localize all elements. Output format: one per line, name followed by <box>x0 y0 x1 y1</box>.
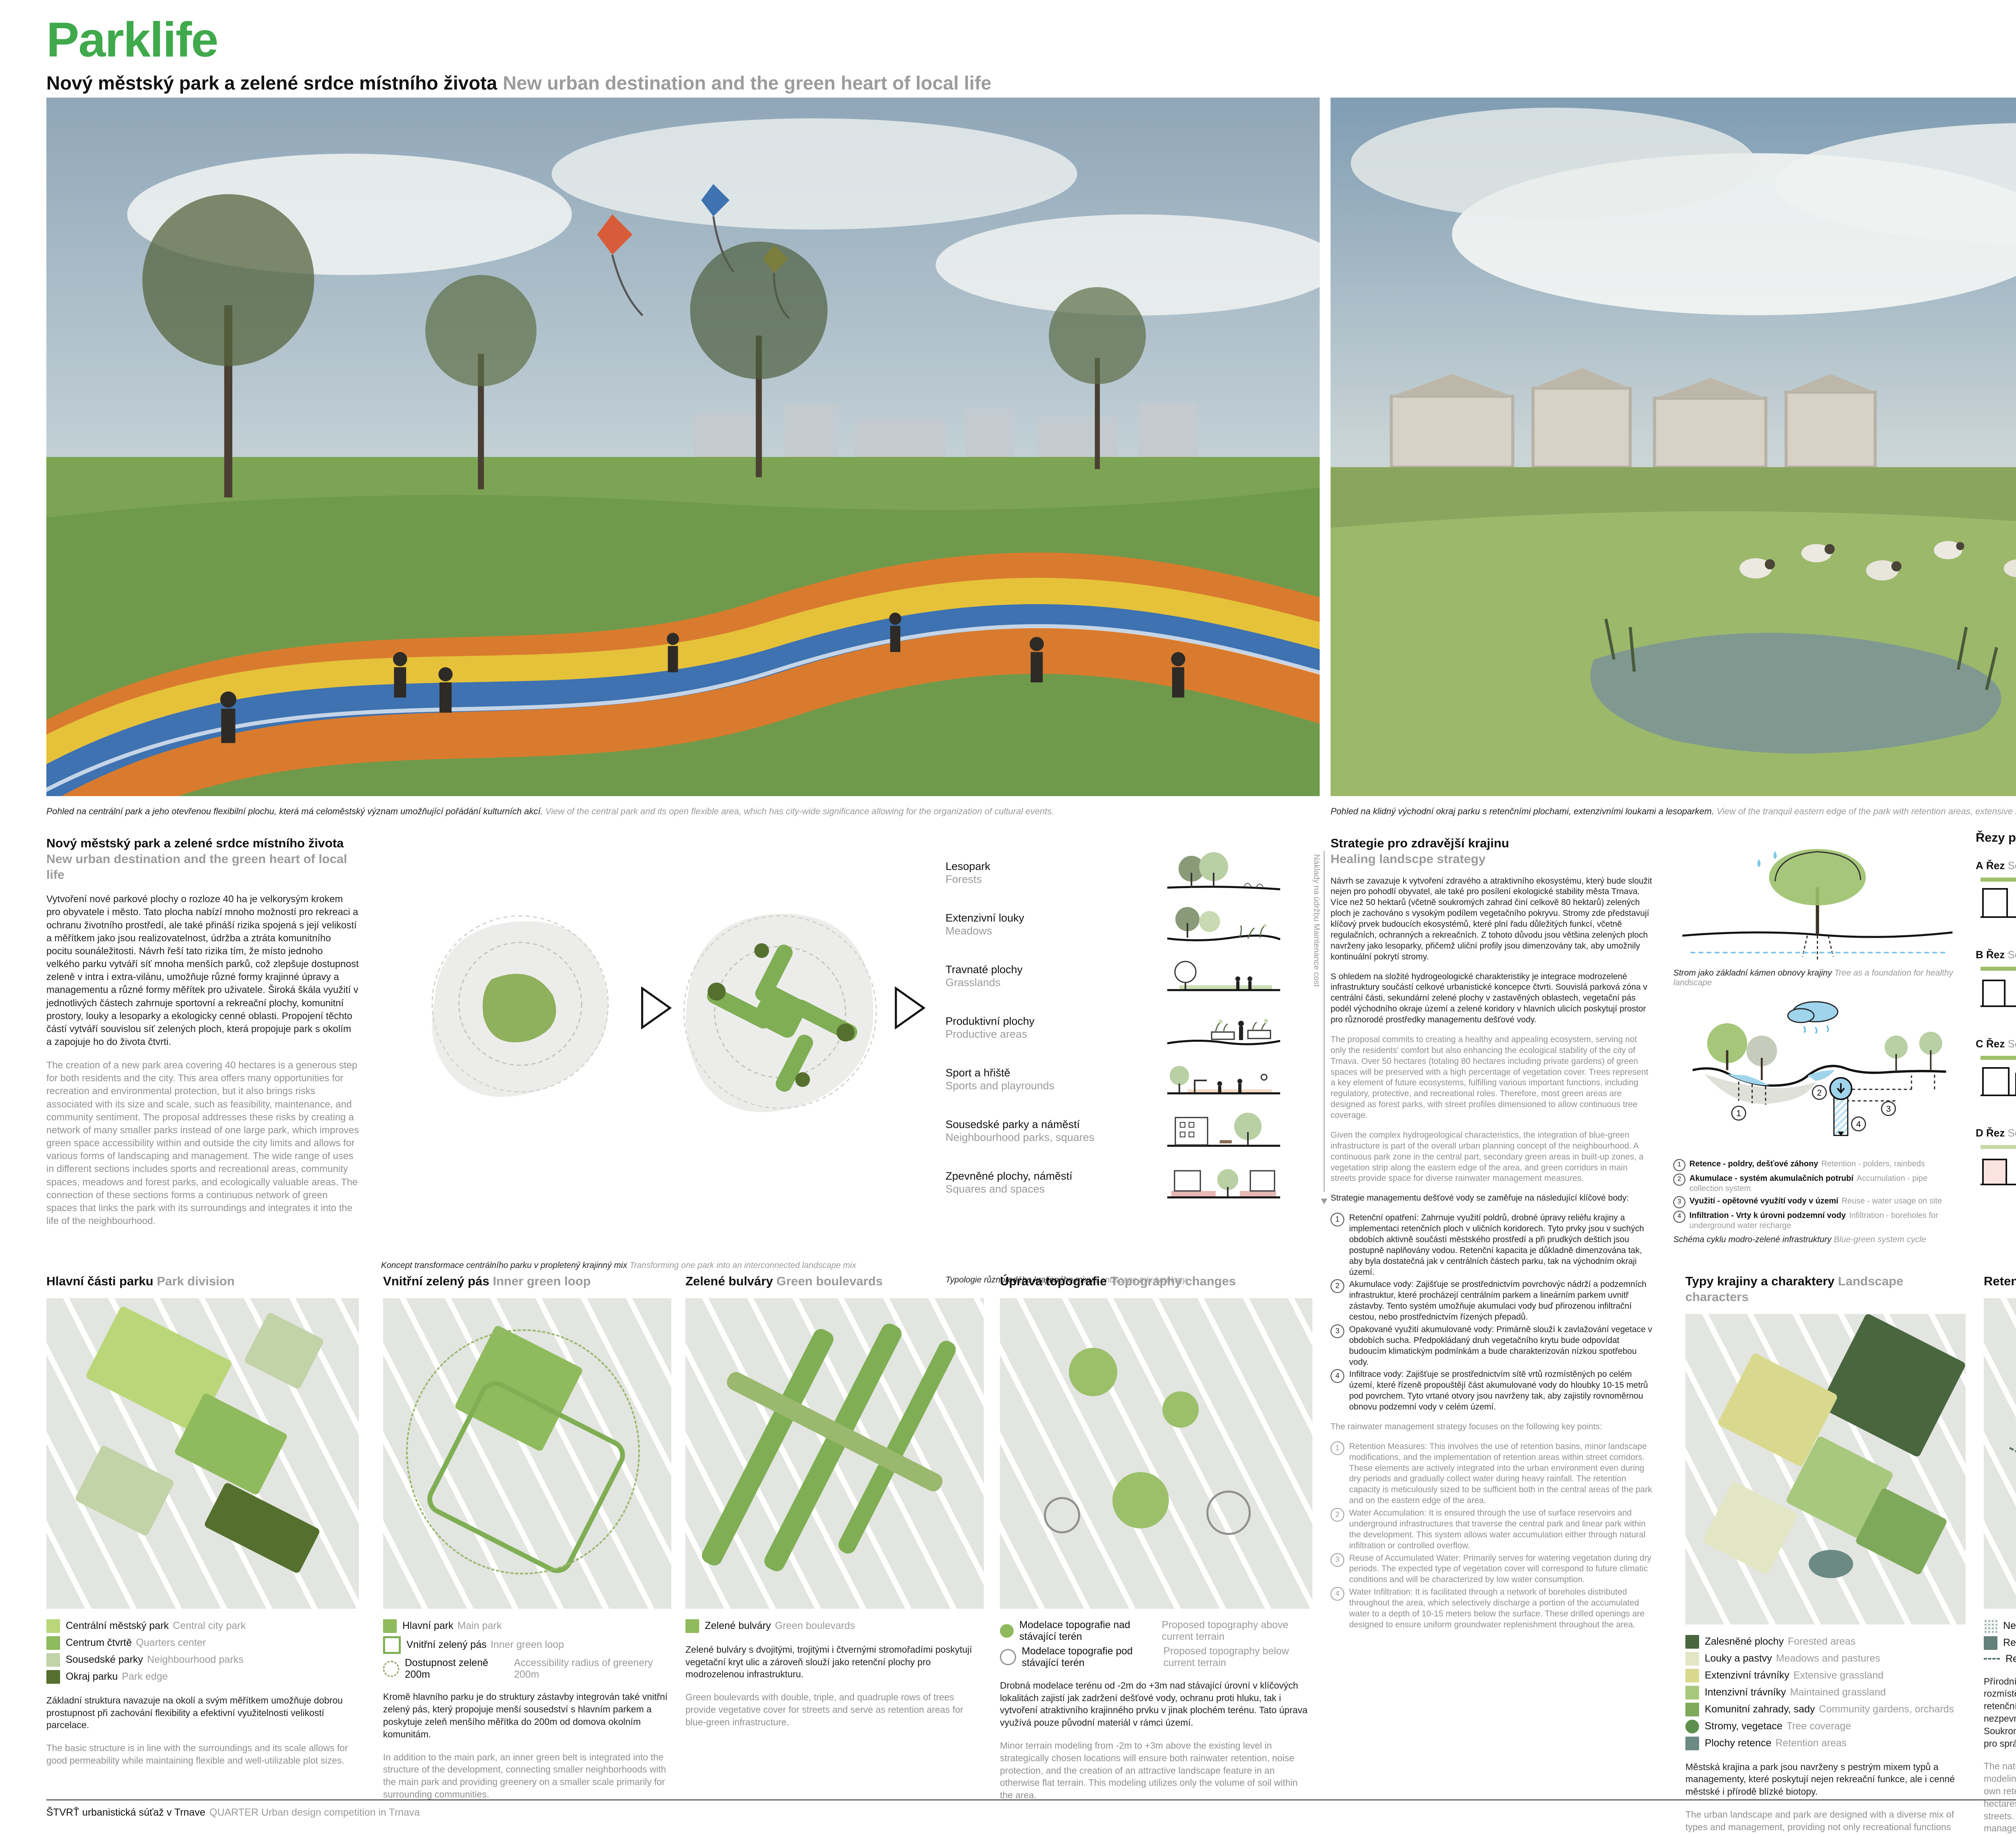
col2-heading: Vnitřní zelený pás Inner green loop <box>383 1274 671 1289</box>
axis-label: Náklady na údržbu Maintenance cost <box>1312 854 1321 987</box>
legend-item: Intenzivní trávníkyMaintained grassland <box>1685 1686 1966 1699</box>
col3-body-en: Green boulevards with double, triple, an… <box>685 1691 984 1728</box>
section-drawing: 1 2 4 <box>1976 1142 2016 1202</box>
typology-item: Zpevněné plochy, náměstíSquares and spac… <box>946 1157 1329 1208</box>
typology-label-en: Squares and spaces <box>946 1182 1119 1195</box>
section-drawing: 1 3 4 <box>1976 963 2016 1024</box>
col1-legend: Centrální městský parkCentral city park … <box>46 1619 359 1684</box>
legend-swatch <box>1000 1624 1014 1638</box>
col6-body-cz: Přírodní systém retenčních oblastí tvoře… <box>1984 1675 2016 1750</box>
typology-item: Extenzivní loukyMeadows <box>946 899 1329 950</box>
legend-item: Hlavní parkMain park <box>383 1619 671 1633</box>
cycle-caption-cz: Schéma cyklu modro-zelené infrastruktury <box>1673 1235 1831 1244</box>
typology-label-cz: Travnaté plochy <box>946 963 1119 976</box>
footer-cz: ŠTVRŤ urbanistická súťaž v Trnave <box>46 1807 205 1818</box>
footer: ŠTVRŤ urbanistická súťaž v TrnaveQUARTER… <box>46 1807 420 1818</box>
hero-right-caption-en: View of the tranquil eastern edge of the… <box>1716 806 2016 816</box>
col1-heading: Hlavní části parku Park division <box>46 1274 359 1289</box>
concept-caption-en: Transforming one park into an interconne… <box>629 1261 856 1270</box>
cycle-caption: Schéma cyklu modro-zelené infrastruktury… <box>1673 1235 1962 1245</box>
legend-swatch <box>1685 1737 1699 1750</box>
list-item: 2Akumulace vody: Zajišťuje se prostředni… <box>1331 1279 1653 1323</box>
typology-legend: LesoparkForests Extenzivní loukyMeadows … <box>946 847 1329 1270</box>
legend-item: Modelace topografie pod stávající terénP… <box>1000 1645 1312 1669</box>
column-green-boulevards: Zelené bulváry Green boulevards Zelené b… <box>685 1274 984 1798</box>
strategy-list-cz: 1Retenční opatření: Zahrnuje využití pol… <box>1331 1213 1653 1413</box>
map-green-boulevards <box>685 1298 984 1609</box>
col2-legend: Hlavní parkMain park Vnitřní zelený pásI… <box>383 1619 671 1681</box>
tree-caption: Strom jako základní kámen obnovy krajiny… <box>1673 968 1962 988</box>
section-row-d: D Řez Section 1 2 4 <box>1976 1127 2016 1202</box>
diagram-column: Strom jako základní kámen obnovy krajiny… <box>1673 843 1962 1270</box>
forest-sketch-icon <box>1119 851 1329 895</box>
cycle-diagram: 1 2 3 4 <box>1673 993 1962 1155</box>
legend-item: Stromy, vegetaceTree coverage <box>1685 1720 1966 1733</box>
col4-legend: Modelace topografie nad stávající terénP… <box>1000 1619 1312 1669</box>
meadow-sketch-icon <box>1119 902 1329 947</box>
concept-caption-cz: Koncept transformace centrálního parku v… <box>381 1261 627 1270</box>
map-inner-green-loop <box>383 1298 671 1609</box>
col1-body-cz: Základní struktura navazuje na okolí a s… <box>46 1694 359 1731</box>
typology-item: Sousedské parky a náměstíNeighbourhood p… <box>946 1105 1329 1157</box>
section-drawing: 1 2 3 <box>1976 1053 2016 1113</box>
list-item: 2Water Accumulation: It is ensured throu… <box>1331 1508 1653 1551</box>
concept-diagram-drawing <box>377 847 925 1210</box>
concept-caption: Koncept transformace centrálního parku v… <box>381 1261 856 1270</box>
strategy-column: Strategie pro zdravější krajinu Healing … <box>1331 836 1653 1804</box>
subtitle-en: New urban destination and the green hear… <box>503 72 991 94</box>
legend-swatch <box>1685 1703 1699 1716</box>
cycle-caption-en: Blue-green system cycle <box>1834 1235 1926 1244</box>
hero-left-image <box>46 98 1320 796</box>
typology-label-cz: Extenzivní louky <box>946 911 1119 924</box>
intro-body-cz: Vytvoření nové parkové plochy o rozloze … <box>46 893 359 1049</box>
strategy-p1-en: The proposal commits to creating a healt… <box>1331 1034 1653 1121</box>
svg-text:1: 1 <box>1736 1109 1741 1118</box>
typology-item: Produktivní plochyProductive areas <box>946 1002 1329 1053</box>
legend-swatch <box>383 1636 401 1654</box>
list-item: 4Water Infiltration: It is facilitated t… <box>1331 1587 1653 1631</box>
col5-body-en: The urban landscape and park are designe… <box>1685 1808 1966 1835</box>
sections-heading: Řezy parkem Park sections 1:000 <box>1976 830 2016 846</box>
hero-right-illustration <box>1331 98 2016 796</box>
column-topography: Úprava topografie Topography changes Mod… <box>1000 1274 1312 1798</box>
intro-heading-cz: Nový městský park a zelené srdce místníh… <box>46 836 359 851</box>
typology-label-cz: Sport a hřiště <box>946 1066 1119 1079</box>
page-title: Parklife <box>46 11 218 68</box>
typology-label-en: Sports and playrounds <box>946 1079 1119 1092</box>
legend-item: Dostupnost zeleně 200mAccessibility radi… <box>383 1657 671 1681</box>
legend-swatch <box>1685 1652 1699 1666</box>
legend-item: Modelace topografie nad stávající terénP… <box>1000 1619 1312 1643</box>
axis-arrowhead-icon <box>1321 1199 1327 1204</box>
strategy-p2-cz: S ohledem na složité hydrogeologické cha… <box>1331 972 1653 1026</box>
hero-left-caption-en: View of the central park and its open fl… <box>546 806 1054 816</box>
map-topography <box>1000 1298 1312 1609</box>
productive-sketch-icon <box>1119 1005 1329 1050</box>
strategy-p1-cz: Návrh se zavazuje k vytvoření zdravého a… <box>1331 876 1653 963</box>
cycle-legend-item: 3Využití - opětovné využítí vody v území… <box>1673 1196 1962 1208</box>
footer-divider <box>46 1800 2016 1800</box>
legend-item: Zelené bulváryGreen boulevards <box>685 1619 984 1633</box>
column-landscape-characters: Typy krajiny a charaktery Landscape char… <box>1685 1274 1966 1798</box>
col5-heading: Typy krajiny a charaktery Landscape char… <box>1685 1274 1966 1305</box>
col3-legend: Zelené bulváryGreen boulevards <box>685 1619 984 1633</box>
map-retention-areas <box>1984 1298 2016 1609</box>
legend-item: Plochy retenceRetention areas <box>1685 1737 1966 1750</box>
list-item: 1Retenční opatření: Zahrnuje využití pol… <box>1331 1213 1653 1278</box>
col5-legend: Zalesněné plochyForested areas Louky a p… <box>1685 1635 1966 1750</box>
hero-right-caption-cz: Pohled na klidný východní okraj parku s … <box>1331 806 1714 816</box>
typology-label-en: Neighbourhood parks, squares <box>946 1131 1119 1144</box>
typology-label-en: Meadows <box>946 924 1119 937</box>
col6-legend: Nezpevněné plochyPermeable areas Retenčn… <box>1984 1619 2016 1665</box>
legend-item: Sousedské parkyNeighbourhood parks <box>46 1653 359 1667</box>
typology-label-cz: Produktivní plochy <box>946 1015 1119 1028</box>
legend-swatch <box>1984 1658 2000 1660</box>
map-park-division <box>46 1298 359 1609</box>
cycle-legend-item: 1Retence - poldry, dešťové záhonyRetenti… <box>1673 1159 1962 1171</box>
list-item: 3Reuse of Accumulated Water: Primarily s… <box>1331 1553 1653 1586</box>
col6-heading: Retenční plochy Retention areas <box>1984 1274 2016 1289</box>
legend-swatch <box>1000 1649 1016 1665</box>
typology-label-cz: Lesopark <box>946 860 1119 873</box>
sport-sketch-icon <box>1119 1057 1329 1101</box>
legend-item: Zalesněné plochyForested areas <box>1685 1635 1966 1649</box>
typology-item: LesoparkForests <box>946 847 1329 899</box>
col4-heading: Úprava topografie Topography changes <box>1000 1274 1312 1289</box>
legend-item: Centrální městský parkCentral city park <box>46 1619 359 1633</box>
hero-left-caption: Pohled na centrální park a jeho otevřeno… <box>46 806 1320 817</box>
hero-left-illustration <box>46 98 1320 796</box>
legend-swatch <box>46 1636 60 1650</box>
legend-swatch <box>1685 1686 1699 1699</box>
concept-diagram: Koncept transformace centrálního parku v… <box>377 847 925 1270</box>
svg-text:2: 2 <box>1817 1088 1822 1097</box>
section-row-c: C Řez Section 1 2 3 <box>1976 1038 2016 1113</box>
legend-swatch <box>1984 1619 1997 1633</box>
column-park-division: Hlavní části parku Park division Centrál… <box>46 1274 359 1798</box>
cycle-legend-item: 2Akumulace - systém akumulačních potrubí… <box>1673 1174 1962 1194</box>
legend-swatch <box>383 1619 397 1633</box>
intro-body-en: The creation of a new park area covering… <box>46 1059 359 1228</box>
legend-item: Centrum čtvrtěQuarters center <box>46 1636 359 1650</box>
maintenance-axis: Náklady na údržbu Maintenance cost <box>1316 851 1333 1206</box>
svg-text:3: 3 <box>1886 1104 1891 1114</box>
section-drawing: 1 2 3 <box>1976 874 2016 935</box>
hero-right-image <box>1331 98 2016 796</box>
col3-body-cz: Zelené bulváry s dvojitými, trojitými i … <box>685 1643 984 1681</box>
typology-label-en: Productive areas <box>946 1028 1119 1041</box>
column-retention-areas: Retenční plochy Retention areas Nezpevně… <box>1984 1274 2016 1798</box>
typology-label-cz: Zpevněné plochy, náměstí <box>946 1170 1119 1182</box>
col6-body-en: The natural retention system consisting … <box>1984 1760 2016 1835</box>
col2-body-en: In addition to the main park, an inner g… <box>383 1751 671 1801</box>
col3-heading: Zelené bulváry Green boulevards <box>685 1274 984 1289</box>
legend-swatch <box>685 1619 699 1633</box>
park-sections: Řezy parkem Park sections 1:000 Umístění… <box>1976 830 2016 1202</box>
col4-body-en: Minor terrain modeling from -2m to +3m a… <box>1000 1739 1312 1802</box>
typology-item: Travnaté plochyGrasslands <box>946 950 1329 1002</box>
list-item: 3Opakované využití akumulované vody: Pri… <box>1331 1324 1653 1368</box>
intro-heading-en: New urban destination and the green hear… <box>46 851 359 883</box>
cloud-icon <box>1788 1002 1838 1033</box>
col4-body-cz: Drobná modelace terénu od -2m do +3m nad… <box>1000 1679 1312 1729</box>
axis-line <box>1324 851 1325 1192</box>
sections-heading-cz: Řezy parkem <box>1976 830 2016 845</box>
col2-body-cz: Kromě hlavního parku je do struktury zás… <box>383 1691 671 1740</box>
intro-heading: Nový městský park a zelené srdce místníh… <box>46 836 359 882</box>
typology-label-cz: Sousedské parky a náměstí <box>946 1118 1119 1131</box>
typology-item: Sport a hřištěSports and playrounds <box>946 1053 1329 1105</box>
square-sketch-icon <box>1119 1160 1329 1205</box>
strategy-list-intro-en: The rainwater management strategy focuse… <box>1331 1422 1653 1433</box>
strategy-heading-en: Healing landscpe strategy <box>1331 851 1653 867</box>
list-item: 4Infiltrace vody: Zajišťuje se prostředn… <box>1331 1369 1653 1413</box>
page-subtitle: Nový městský park a zelené srdce místníh… <box>46 72 991 94</box>
list-item: 1Retention Measures: This involves the u… <box>1331 1441 1653 1506</box>
legend-swatch <box>1685 1720 1699 1733</box>
col1-body-en: The basic structure is in line with the … <box>46 1742 359 1767</box>
tree-diagram <box>1673 843 1962 964</box>
strategy-list-en: 1Retention Measures: This involves the u… <box>1331 1441 1653 1631</box>
grassland-sketch-icon <box>1119 954 1329 998</box>
legend-item: Vnitřní zelený pásInner green loop <box>383 1636 671 1654</box>
cycle-legend-item: 4Infiltration - Vrty k úrovni podzemní v… <box>1673 1211 1962 1231</box>
legend-item: Nezpevněné plochyPermeable areas <box>1984 1619 2016 1633</box>
subtitle-cz: Nový městský park a zelené srdce místníh… <box>46 72 497 94</box>
legend-item: Extenzivní trávníkyExtensive grassland <box>1685 1669 1966 1683</box>
cycle-legend: 1Retence - poldry, dešťové záhonyRetenti… <box>1673 1159 1962 1231</box>
col5-body-cz: Městská krajina a park jsou navrženy s p… <box>1685 1761 1966 1798</box>
legend-swatch <box>46 1619 60 1633</box>
footer-en: QUARTER Urban design competition in Trna… <box>209 1807 420 1818</box>
legend-item: Louky a pastvyMeadows and pastures <box>1685 1652 1966 1666</box>
hero-right-caption: Pohled na klidný východní okraj parku s … <box>1331 806 2016 817</box>
strategy-heading: Strategie pro zdravější krajinu Healing … <box>1331 836 1653 867</box>
intro-column: Nový městský park a zelené srdce místníh… <box>46 836 359 1228</box>
legend-item: Retence v uličním profiluStreet retentio… <box>1984 1653 2016 1665</box>
map-landscape-characters <box>1685 1314 1966 1624</box>
svg-text:4: 4 <box>1856 1120 1861 1129</box>
strategy-list-intro-cz: Strategie managementu dešťové vody se za… <box>1331 1193 1653 1204</box>
section-row-a: A Řez Section 1 2 3 <box>1976 859 2016 935</box>
section-row-b: B Řez Section 1 3 4 <box>1976 949 2016 1024</box>
hero-left-caption-cz: Pohled na centrální park a jeho otevřeno… <box>46 806 543 816</box>
legend-swatch <box>1685 1635 1699 1649</box>
presentation-board: Parklife 4/6 Nový městský park a zelené … <box>0 0 2016 1835</box>
legend-swatch <box>383 1661 399 1677</box>
legend-swatch <box>46 1670 60 1684</box>
legend-item: Okraj parkuPark edge <box>46 1670 359 1684</box>
legend-item: Komunitní zahrady, sadyCommunity gardens… <box>1685 1703 1966 1716</box>
legend-swatch <box>1984 1636 1997 1650</box>
neighbourhood-sketch-icon <box>1119 1109 1329 1153</box>
legend-swatch <box>1685 1669 1699 1683</box>
typology-label-en: Grasslands <box>946 976 1119 989</box>
legend-item: Retenční plochyRetention areas, polders <box>1984 1636 2016 1650</box>
typology-label-en: Forests <box>946 873 1119 886</box>
strategy-heading-cz: Strategie pro zdravější krajinu <box>1331 836 1653 851</box>
column-inner-green-loop: Vnitřní zelený pás Inner green loop Hlav… <box>383 1274 671 1798</box>
strategy-p2-en: Given the complex hydrogeological charac… <box>1331 1130 1653 1184</box>
tree-caption-cz: Strom jako základní kámen obnovy krajiny <box>1673 968 1832 978</box>
legend-swatch <box>46 1653 60 1667</box>
